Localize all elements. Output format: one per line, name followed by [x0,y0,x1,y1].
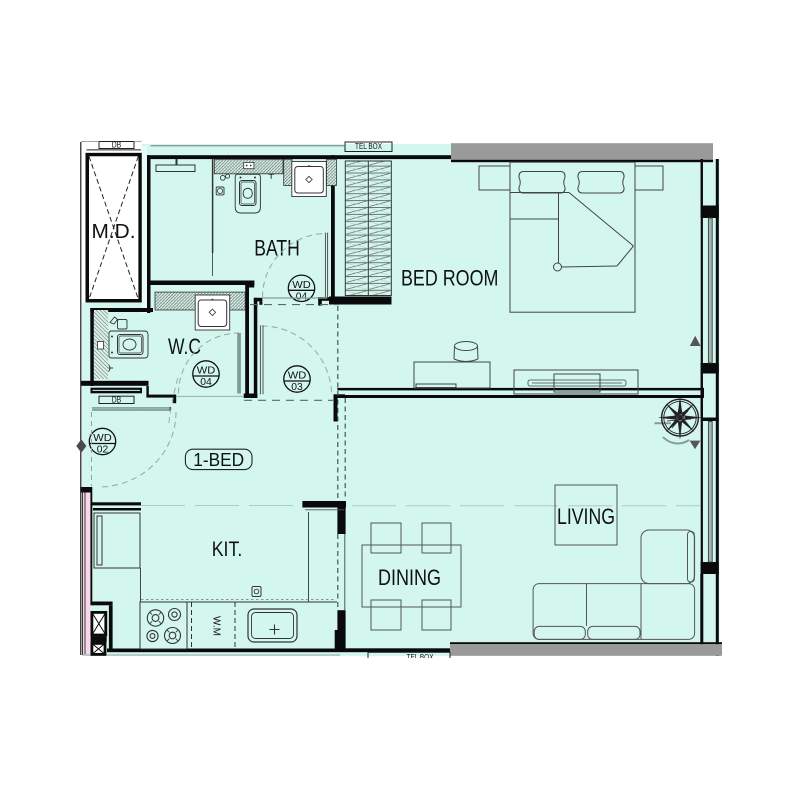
svg-text:WD: WD [197,365,216,377]
svg-text:W.M: W.M [211,616,222,636]
svg-text:02: 02 [97,444,109,456]
svg-text:M.D.: M.D. [92,220,136,243]
svg-text:TEL BOX: TEL BOX [355,142,383,151]
svg-text:KIT.: KIT. [212,537,243,561]
svg-text:DB: DB [112,141,122,150]
svg-text:DINING: DINING [378,565,441,590]
svg-text:WD: WD [93,432,112,444]
svg-text:04: 04 [200,376,212,388]
svg-text:WD: WD [292,279,311,291]
svg-text:LIVING: LIVING [557,504,615,529]
svg-text:04: 04 [296,291,308,303]
svg-text:03: 03 [291,381,303,393]
svg-text:DB: DB [112,396,122,405]
svg-text:WD: WD [288,370,307,382]
svg-text:BED ROOM: BED ROOM [401,266,499,291]
svg-text:1-BED: 1-BED [193,449,244,470]
svg-text:W.C: W.C [168,334,201,359]
